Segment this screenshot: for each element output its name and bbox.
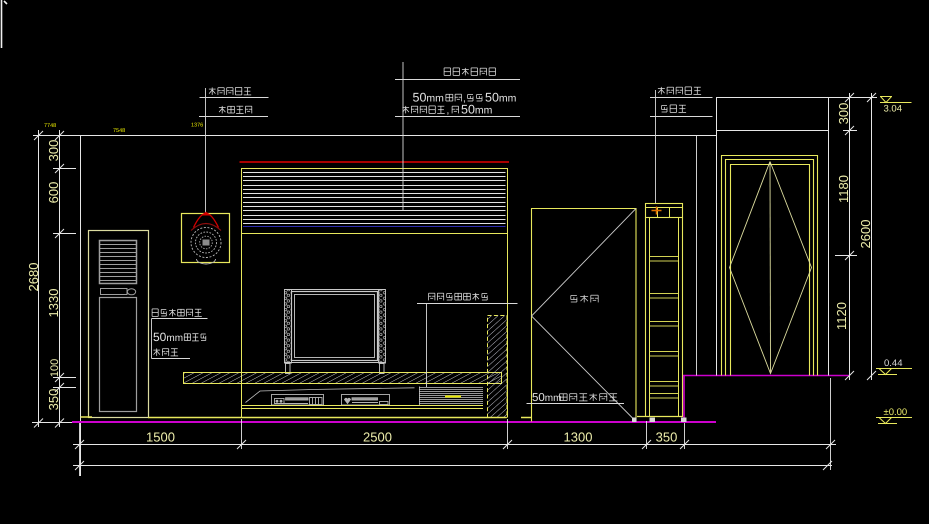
- svg-text:350: 350: [656, 430, 678, 445]
- svg-text:50mm: 50mm: [153, 330, 183, 344]
- svg-text:0.44: 0.44: [884, 358, 903, 369]
- svg-text:1330: 1330: [46, 289, 61, 318]
- svg-text:50mm: 50mm: [461, 103, 493, 117]
- svg-text:1376: 1376: [191, 123, 203, 129]
- svg-text:2680: 2680: [26, 263, 41, 292]
- svg-text:100: 100: [49, 359, 61, 377]
- svg-text:3.04: 3.04: [884, 104, 903, 115]
- svg-text:50mm: 50mm: [413, 91, 445, 105]
- svg-text:7548: 7548: [113, 128, 125, 134]
- svg-text:±0.00: ±0.00: [884, 407, 908, 418]
- svg-text:1120: 1120: [834, 302, 849, 330]
- svg-text:50mm: 50mm: [532, 392, 561, 404]
- svg-text:600: 600: [46, 182, 61, 204]
- svg-text:1300: 1300: [564, 430, 593, 445]
- svg-text:50mm: 50mm: [485, 91, 517, 105]
- svg-text:2600: 2600: [858, 220, 873, 249]
- svg-text:1500: 1500: [146, 430, 175, 445]
- svg-text:1180: 1180: [836, 175, 851, 203]
- svg-text:300: 300: [836, 103, 851, 125]
- svg-text:300: 300: [46, 140, 61, 162]
- svg-text:,: ,: [447, 106, 450, 117]
- svg-text:7748: 7748: [44, 123, 56, 129]
- svg-text:350: 350: [46, 389, 61, 411]
- svg-text:2500: 2500: [363, 430, 392, 445]
